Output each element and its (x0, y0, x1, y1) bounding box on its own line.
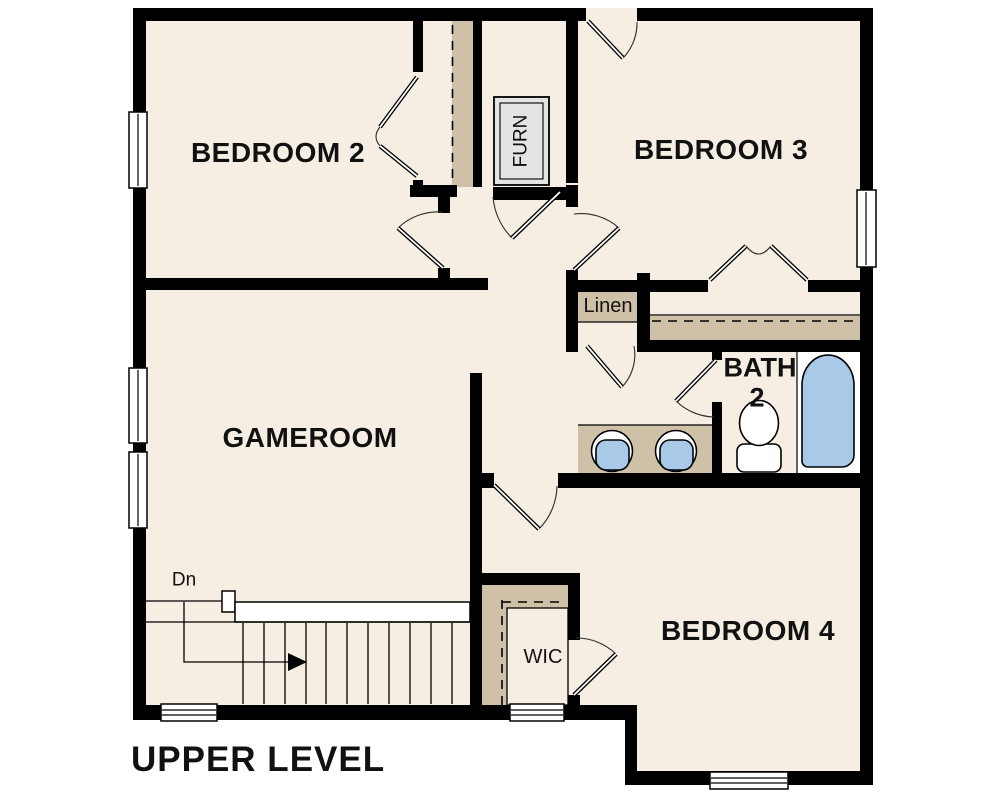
room-label-bath-number: 2 (749, 385, 764, 412)
window-bedroom4-bottom (710, 772, 788, 789)
floor-plan-svg (0, 0, 1000, 800)
room-label-bath: BATH (724, 355, 797, 382)
window-bedroom2-left (129, 112, 147, 188)
stair-break-marker (222, 591, 235, 612)
floor-plan-canvas: BEDROOM 2 BEDROOM 3 GAMEROOM BEDROOM 4 B… (0, 0, 1000, 800)
bedroom2-closet-shelf (452, 21, 473, 187)
window-gameroom-left-1 (129, 368, 147, 443)
wall-bedroom3-west (566, 21, 578, 183)
room-label-gameroom: GAMEROOM (222, 424, 397, 452)
toilet-tank (737, 444, 781, 472)
sink-right-basin (660, 440, 693, 470)
room-label-linen: Linen (584, 296, 633, 316)
room-label-bedroom2: BEDROOM 2 (191, 139, 365, 167)
wall-gameroom-east (470, 373, 482, 705)
window-stairs-bottom (161, 704, 217, 721)
window-gameroom-left-2 (129, 452, 147, 528)
wall-bath-north (650, 340, 873, 352)
bedroom3-closet-shelf (650, 316, 860, 340)
stairs-down-label: Dn (172, 571, 196, 590)
room-label-bedroom3: BEDROOM 3 (634, 136, 808, 164)
window-bottom-center (510, 704, 564, 721)
wall-top-left (133, 8, 586, 21)
wall-top-right (637, 8, 873, 21)
wall-wic-north (482, 573, 580, 585)
sink-left-basin (596, 440, 629, 470)
room-label-furnace: FURN (512, 115, 531, 168)
wall-bath-south (558, 473, 873, 488)
room-label-wic: WIC (524, 647, 563, 667)
bathtub (802, 355, 854, 467)
plan-title: UPPER LEVEL (131, 740, 385, 780)
sink-left (592, 431, 633, 472)
wall-right (860, 8, 873, 785)
room-label-bedroom4: BEDROOM 4 (661, 617, 835, 645)
stair-stringer-band (235, 602, 470, 622)
sink-right (656, 431, 697, 472)
wall-bedroom2-gameroom (133, 278, 488, 290)
window-bedroom3-right (857, 190, 876, 267)
